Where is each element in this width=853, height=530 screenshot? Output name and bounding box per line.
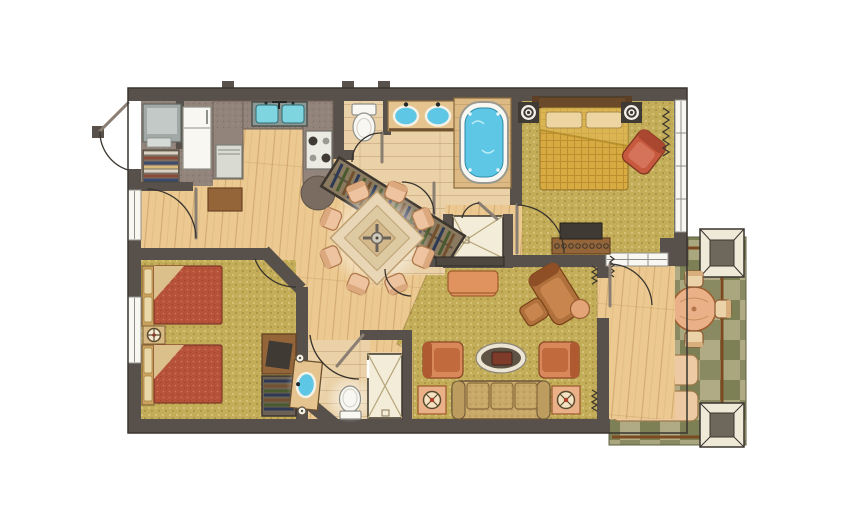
sconce-dot — [299, 357, 301, 359]
guest-tv — [265, 340, 292, 369]
window-foyer — [128, 190, 141, 240]
wall-living-patio-upper — [597, 267, 609, 278]
toilet-water-closet — [352, 104, 376, 141]
entry-door — [100, 103, 128, 170]
master-pillow-right — [586, 112, 622, 128]
master-bed — [532, 96, 632, 190]
end-table-left — [418, 386, 446, 414]
speaker-nightstand-left — [518, 102, 539, 123]
master-headboard — [536, 97, 628, 108]
window-master-bedroom — [675, 100, 687, 232]
guest-dresser — [262, 334, 296, 374]
wall-kitchen-wc — [332, 101, 344, 159]
coffee-table-tray — [492, 352, 512, 365]
guest-nightstand — [143, 326, 165, 344]
sconce-dot-2 — [301, 410, 303, 412]
wall-guest-bedroom-top — [141, 248, 267, 260]
oval-coffee-table — [476, 343, 526, 373]
master-tv — [560, 223, 602, 239]
cooktop — [306, 131, 332, 169]
linen-shelves — [143, 150, 179, 182]
double-vanity — [388, 101, 458, 131]
floor-plan-drawing — [0, 0, 853, 530]
upholstered-bench — [448, 271, 498, 293]
jetted-tub — [454, 98, 511, 188]
patio-column-top — [700, 229, 744, 277]
wall-bottom — [128, 419, 610, 433]
vanity-faucet-right — [436, 102, 440, 106]
stacked-washer-dryer — [143, 104, 181, 147]
refrigerator — [183, 107, 211, 169]
patio-chair-east — [715, 300, 731, 318]
living-armchair-left — [423, 342, 463, 378]
guest-toilet — [340, 386, 362, 419]
master-dresser — [552, 223, 610, 254]
double-sink — [252, 102, 307, 127]
entry-door-opening — [128, 101, 141, 169]
guest-shower — [368, 354, 402, 418]
guest-bed-1 — [142, 266, 222, 326]
console-cabinet — [208, 188, 242, 211]
sofa — [452, 381, 550, 419]
speaker-nightstand-right — [621, 102, 642, 123]
window-guest-bedroom — [128, 297, 141, 363]
vanity-sink-right — [426, 107, 450, 126]
patio-column-bottom — [700, 403, 744, 447]
dishwasher — [216, 145, 242, 178]
wall-guest-bath-right — [402, 330, 412, 419]
guest-bed-2 — [142, 345, 222, 405]
living-armchair-right — [539, 342, 579, 378]
wall-master-bedroom-bottom — [510, 255, 608, 267]
round-side-table — [571, 300, 590, 319]
wall-living-patio-lower — [597, 318, 609, 419]
patio-table-center — [692, 307, 697, 312]
master-pillow-left — [546, 112, 582, 128]
vanity-faucet-left — [404, 102, 408, 106]
end-table-right — [552, 386, 580, 414]
vanity-sink-left — [394, 107, 418, 126]
guest-vanity — [290, 360, 323, 411]
table-lamp-icon — [424, 392, 441, 409]
floor-plan-page — [0, 0, 853, 530]
tv-console — [436, 257, 504, 266]
table-lamp-icon — [558, 392, 575, 409]
